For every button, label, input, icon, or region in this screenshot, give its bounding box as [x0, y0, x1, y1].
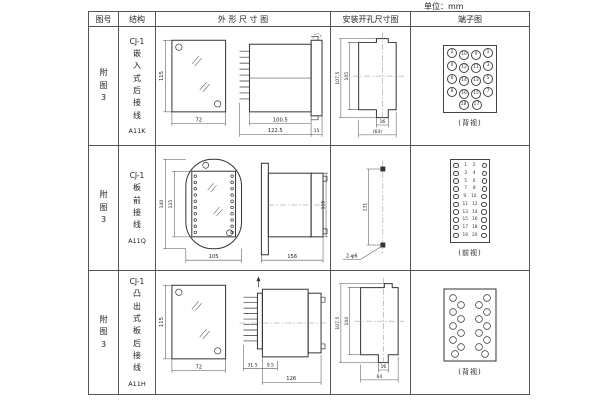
- view-label: (前视): [458, 248, 481, 258]
- outline-cell-row1: 115 72 100.5 122.5 15: [156, 27, 331, 146]
- mounting-cell-row2: 131 2-φ6: [331, 146, 411, 271]
- mounting-drawing-a11h: 107.5 104 16 64: [331, 271, 410, 394]
- fig-no-cell-row1: 附 图 3: [89, 27, 119, 146]
- terminal-number: 10: [471, 194, 476, 199]
- fig-no-cell-row2: 附 图 3: [89, 146, 119, 271]
- terminal-number: 6: [473, 179, 476, 184]
- terminal-box-back-view: 2 10 9 1 4 12 11 3 6 14 13 5: [443, 45, 497, 113]
- terminal-circle: 7: [483, 87, 493, 97]
- terminal-circle: [453, 202, 459, 208]
- terminal-circle: 3: [483, 61, 493, 71]
- terminal-cell-row3: (背视): [411, 271, 529, 394]
- terminal-row: 4 12 11 3: [447, 61, 493, 73]
- fig-no: 附 图 3: [100, 67, 108, 104]
- dim-label: 16: [379, 119, 385, 125]
- terminal-row: 8 16 15 7: [447, 87, 493, 99]
- terminal-number: 13: [463, 210, 468, 215]
- terminal-cell-row1: 2 10 9 1 4 12 11 3 6 14 13 5: [411, 27, 529, 146]
- terminal-circle: 10: [459, 50, 469, 60]
- terminal-number: 15: [463, 217, 468, 222]
- terminal-number: 11: [463, 202, 468, 207]
- model-label: CJ-1: [130, 37, 145, 46]
- structure-cell-row2: CJ-1 板 前 接 线 A11Q: [119, 146, 156, 271]
- terminal-number: 16: [472, 217, 477, 222]
- outline-drawing-a11q: 140 125 105 156 115: [156, 146, 330, 271]
- terminal-circle: [453, 233, 459, 239]
- terminal-box-front-view: 12 34 56 78 910 1112 1314 1516 1718 1920: [450, 159, 490, 243]
- terminal-circle: [453, 209, 459, 215]
- dim-label: 122.5: [268, 128, 283, 134]
- terminal-number: 14: [472, 210, 477, 215]
- terminal-circle: 13: [471, 76, 481, 86]
- terminal-cell-row2: 12 34 56 78 910 1112 1314 1516 1718 1920…: [411, 146, 529, 271]
- dim-label: 31.5: [247, 362, 257, 368]
- terminal-circle: [453, 194, 459, 200]
- header-outline: 外 形 尺 寸 图: [156, 12, 331, 27]
- terminal-circle: 2: [447, 48, 457, 58]
- terminal-number: 3: [464, 171, 467, 176]
- terminal-circle: 11: [471, 63, 481, 73]
- terminal-pin-dots: [194, 174, 233, 233]
- mounting-cell-row3: 107.5 104 16 64: [331, 271, 411, 394]
- dim-label: 100.5: [273, 117, 288, 123]
- dim-label: 16: [380, 364, 386, 370]
- header-mounting: 安装开孔尺寸图: [331, 12, 411, 27]
- terminal-row: 34: [453, 171, 487, 177]
- header-terminal: 端子图: [411, 12, 529, 27]
- outline-cell-row3: 115 72 31.5 9.5 126: [156, 271, 331, 394]
- terminal-number: 12: [472, 202, 477, 207]
- terminal-row: 910: [453, 194, 487, 200]
- outline-drawing-a11h: 115 72 31.5 9.5 126: [156, 271, 330, 394]
- mounting-drawing-a11k: 107.5 105 16 (64): [331, 27, 410, 146]
- dim-label: 15: [314, 128, 320, 134]
- dim-label: 104: [344, 317, 350, 326]
- terminal-number: 8: [473, 186, 476, 191]
- terminal-row: 1718: [453, 225, 487, 231]
- structure-type: 凸 出 式 板 后 接 线: [133, 288, 141, 375]
- dim-label: 2-φ6: [346, 253, 358, 259]
- structure-type: 嵌 入 式 后 接 线: [133, 48, 141, 122]
- terminal-circle: [482, 171, 488, 177]
- dim-label: 126: [286, 376, 296, 382]
- structure-type: 板 前 接 线: [133, 182, 141, 232]
- model-label: CJ-1: [130, 277, 145, 286]
- terminal-number: 2: [473, 163, 476, 168]
- terminal-circle: [482, 186, 488, 192]
- dim-label: 140: [159, 199, 165, 208]
- terminal-circle: [453, 217, 459, 223]
- mounting-cell-row1: 107.5 105 16 (64): [331, 27, 411, 146]
- terminal-number: 20: [472, 233, 477, 238]
- fig-no: 附 图 3: [100, 314, 108, 351]
- structure-cell-row3: CJ-1 凸 出 式 板 后 接 线 A11H: [119, 271, 156, 394]
- terminal-row: 1516: [453, 217, 487, 223]
- terminal-circle: [453, 163, 459, 169]
- dimension-table: 图号 结构 外 形 尺 寸 图 安装开孔尺寸图 端子图 附 图 3 CJ-1 嵌…: [88, 11, 530, 395]
- terminal-circle: [481, 217, 487, 223]
- dim-label: 72: [195, 117, 202, 123]
- terminal-box-back-view: [443, 288, 497, 362]
- terminal-number: 4: [473, 171, 476, 176]
- type-code: A11H: [128, 380, 146, 388]
- terminal-circle: [481, 202, 487, 208]
- view-label: (背视): [458, 118, 481, 128]
- terminal-circle: [482, 178, 488, 184]
- type-code: A11K: [129, 127, 146, 135]
- outline-cell-row2: 140 125 105 156 115: [156, 146, 331, 271]
- terminal-circle: [453, 225, 459, 231]
- terminal-circle: 17: [472, 100, 482, 110]
- model-label: CJ-1: [130, 171, 145, 180]
- terminal-number: 9: [463, 194, 466, 199]
- terminal-circle: [453, 171, 459, 177]
- dim-label: 107.5: [335, 317, 341, 330]
- dim-label: 115: [321, 200, 327, 209]
- mounting-hole: [380, 166, 385, 171]
- mounting-drawing-a11q: 131 2-φ6: [331, 146, 410, 271]
- relay-dimension-sheet: 单位：mm 图号 结构 外 形 尺 寸 图 安装开孔尺寸图 端子图 附 图 3 …: [0, 0, 600, 400]
- terminal-circles: [450, 295, 491, 358]
- dim-label: 105: [344, 71, 350, 80]
- header-structure: 结构: [119, 12, 156, 27]
- dim-label: 115: [159, 317, 165, 327]
- dim-label: 72: [195, 364, 202, 370]
- terminal-circle: 16: [459, 89, 469, 99]
- terminal-circle: [481, 233, 487, 239]
- dim-label: 107.5: [335, 71, 341, 84]
- terminal-circle: 5: [483, 74, 493, 84]
- fig-no-cell-row3: 附 图 3: [89, 271, 119, 394]
- terminal-circle: 12: [459, 63, 469, 73]
- dim-label: 131: [363, 202, 369, 211]
- terminal-circle: [482, 163, 488, 169]
- terminal-row: 1112: [453, 202, 487, 208]
- dim-label: 115: [159, 71, 165, 81]
- dim-label: 64: [376, 374, 382, 380]
- dim-label: 125: [168, 199, 174, 208]
- terminal-row: 2 10 9 1: [447, 48, 493, 60]
- terminal-circle: 8: [447, 87, 457, 97]
- type-code: A11Q: [128, 237, 146, 245]
- terminal-circle: 6: [447, 74, 457, 84]
- outline-drawing-a11k: 115 72 100.5 122.5 15: [156, 27, 330, 146]
- structure-cell-row1: CJ-1 嵌 入 式 后 接 线 A11K: [119, 27, 156, 146]
- terminal-number: 19: [463, 233, 468, 238]
- terminal-number: 17: [463, 225, 468, 230]
- terminal-circle: 9: [471, 50, 481, 60]
- header-fig-no: 图号: [89, 12, 119, 27]
- dim-label: 156: [287, 254, 297, 260]
- terminal-row: 6 14 13 5: [447, 74, 493, 86]
- terminal-circle: 18: [459, 100, 469, 110]
- terminal-circle: [481, 209, 487, 215]
- terminal-row: 56: [453, 178, 487, 184]
- terminal-row: 1314: [453, 209, 487, 215]
- terminal-circle: 15: [471, 89, 481, 99]
- terminal-circle: 1: [483, 48, 493, 58]
- terminal-row: 12: [453, 163, 487, 169]
- terminal-row: 1920: [453, 233, 487, 239]
- terminal-circle: [481, 225, 487, 231]
- terminal-number: 1: [464, 163, 467, 168]
- fig-no: 附 图 3: [100, 189, 108, 226]
- dim-label: (64): [373, 128, 383, 134]
- dim-label: 9.5: [267, 362, 274, 368]
- terminal-number: 7: [464, 186, 467, 191]
- terminal-row: 78: [453, 186, 487, 192]
- terminal-circle: 14: [459, 76, 469, 86]
- terminal-row: 18 17: [447, 100, 493, 110]
- terminal-circle: [453, 178, 459, 184]
- terminal-number: 5: [464, 179, 467, 184]
- terminal-number: 18: [472, 225, 477, 230]
- terminal-circle: [481, 194, 487, 200]
- terminal-circle: [453, 186, 459, 192]
- view-label: (背视): [458, 367, 481, 377]
- terminal-circle: 4: [447, 61, 457, 71]
- dim-label: 105: [209, 254, 219, 260]
